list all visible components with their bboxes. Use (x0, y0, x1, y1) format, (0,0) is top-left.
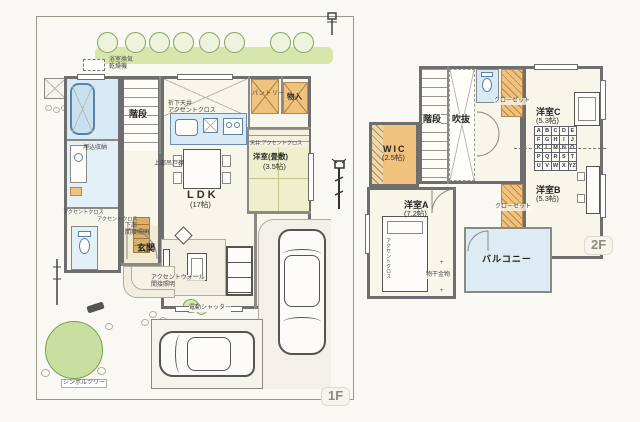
wic-size: (2.5帖) (382, 154, 405, 163)
car-cabin (187, 337, 231, 371)
floor1-plan: 浴室換気 乾燥機 階段 折下天井 アクセントクロス パントリー 物入 天井:アク… (36, 16, 354, 400)
chair (222, 172, 231, 184)
bench (86, 302, 104, 314)
chair (222, 155, 231, 167)
bathtub (70, 83, 95, 135)
dining-table (183, 149, 221, 189)
alphabet-cell: X (560, 162, 567, 170)
bath-vent-label: 浴室換気 乾燥機 (109, 57, 133, 71)
door-arc (468, 231, 488, 251)
toilet-icon (79, 238, 90, 254)
sink (74, 153, 83, 162)
closet-top (501, 69, 523, 117)
stepping-stone (149, 311, 157, 318)
window (177, 74, 233, 80)
alphabet-cell: YZ (569, 162, 576, 170)
alphabet-cell: W (552, 162, 559, 170)
kitchen-hatch-box (203, 118, 218, 133)
tree-icon (125, 32, 146, 53)
utility-pole-icon (325, 11, 339, 37)
stairs (422, 69, 447, 181)
door-arc (432, 189, 456, 213)
desk-room-b (586, 166, 600, 214)
car-windshield (175, 335, 185, 373)
burner-icon (226, 122, 232, 128)
door-arc (477, 112, 499, 134)
wall (247, 129, 249, 213)
tree-icon (173, 32, 194, 53)
laundry-mark: + (440, 288, 444, 295)
alphabet-cell: D (560, 127, 567, 135)
window (308, 153, 314, 201)
storage-label: 物入 (287, 93, 302, 102)
recessed-storage-label: 埋込収納 (83, 145, 107, 152)
pantry-label: パントリー (252, 91, 285, 98)
tree-icon (270, 32, 291, 53)
void-area (449, 69, 475, 181)
car-cabin (284, 255, 320, 307)
low-table-inner (191, 258, 203, 276)
accent-wall-label: アクセントウォール 間接照明 (151, 275, 205, 289)
accent-cloth-hall-label: アクセントクロス (97, 217, 138, 223)
stepping-stone (45, 105, 52, 111)
toilet-icon (78, 231, 91, 237)
window (365, 214, 370, 254)
alphabet-cell: B (543, 127, 550, 135)
pillow (387, 221, 423, 234)
utility-pole-icon (331, 157, 347, 213)
window (534, 64, 578, 70)
room-c-size: (5.3帖) (536, 117, 559, 126)
stairs-label: 階段 (423, 114, 441, 124)
desk-inner (578, 97, 596, 121)
room-b-size: (5.3帖) (536, 195, 559, 204)
electric-shutter-label: 電動シャッター (189, 305, 231, 312)
alphabet-cell: S (560, 153, 567, 161)
tatami-size-label: (3.5帖) (263, 163, 286, 172)
closet-top-label: クローゼット (494, 98, 530, 105)
window (77, 74, 105, 80)
balcony-label: バルコニー (482, 254, 532, 264)
stairs-label: 階段 (129, 109, 147, 119)
stepping-stone (53, 107, 60, 113)
toilet-icon (482, 78, 492, 92)
alphabet-cell: C (552, 127, 559, 135)
dropped-ceiling-label: 折下天井 アクセントクロス (168, 101, 216, 115)
wall (447, 66, 449, 184)
alphabet-cell: P (535, 153, 542, 161)
room-a-size: (7.2帖) (404, 210, 427, 219)
void-label: 吹抜 (452, 114, 470, 124)
kitchen-sink (175, 119, 198, 136)
window (600, 80, 606, 120)
entrance-label: 玄関 (137, 243, 155, 253)
laundry-hardware-label: 物干金物 (426, 272, 450, 279)
alphabet-cell: J (569, 136, 576, 144)
floor2-tag: 2F (584, 236, 613, 255)
storage-box (70, 187, 82, 196)
bath-vent-unit (83, 59, 105, 71)
closet-bottom-label: クローゼット (495, 204, 531, 211)
chair (173, 172, 182, 184)
burner-icon (234, 122, 240, 128)
tree-icon (293, 32, 314, 53)
tree-icon (149, 32, 170, 53)
symbol-tree (45, 321, 103, 379)
alphabet-cell: I (560, 136, 567, 144)
tree-icon (97, 32, 118, 53)
alphabet-cell: R (552, 153, 559, 161)
floor2-plan: ABCDEFGHIJKLMNOPQRSTUVWXYZ + + 階段 吹抜 クロー… (364, 54, 626, 306)
ldk-size-label: (17帖) (190, 201, 211, 210)
alphabet-cell: Q (543, 153, 550, 161)
toilet-icon (481, 72, 493, 77)
alphabet-cell: V (543, 162, 550, 170)
symbol-tree-label: シンボルツリー (61, 379, 107, 388)
floor-plan-sheet: 浴室換気 乾燥機 階段 折下天井 アクセントクロス パントリー 物入 天井:アク… (0, 0, 640, 422)
door-arc (477, 134, 499, 156)
alphabet-cell: E (569, 127, 576, 135)
chair (577, 172, 585, 181)
stepping-stone (105, 323, 113, 330)
stepping-stone (141, 319, 149, 326)
gate-pole-icon (51, 257, 63, 307)
alphabet-cell: A (535, 127, 542, 135)
section-line (514, 148, 606, 149)
chair (577, 194, 585, 203)
upper-cabinet-label: 上部吊戸棚 (154, 161, 184, 168)
car-rearline (283, 317, 321, 327)
sofa (226, 246, 253, 296)
accent-cloth-wash-label: アクセントクロス (63, 210, 104, 216)
alphabet-cell: H (552, 136, 559, 144)
tree-icon (224, 32, 245, 53)
floor1-tag: 1F (321, 387, 350, 406)
tatami-ceiling-label: 天井:アクセントクロス (250, 141, 302, 147)
tatami-room-label: 洋室(畳敷) (253, 153, 288, 162)
alphabet-cell: T (569, 153, 576, 161)
planter-box (44, 78, 66, 99)
alphabet-cell: U (535, 162, 542, 170)
alphabet-cell: F (535, 136, 542, 144)
wall (248, 76, 250, 129)
stepping-stone (41, 369, 50, 377)
alphabet-cell: G (543, 136, 550, 144)
wall (67, 207, 118, 209)
tatami-line (249, 178, 309, 179)
accent-cloth-label: アクセントクロス (384, 238, 390, 279)
entrance-lighting-label: 下部 間接照明 (125, 223, 149, 237)
laundry-mark: + (440, 260, 444, 267)
window (600, 174, 606, 218)
wall (159, 76, 161, 154)
wall (254, 213, 257, 309)
tree-icon (199, 32, 220, 53)
stepping-stone (97, 367, 106, 375)
